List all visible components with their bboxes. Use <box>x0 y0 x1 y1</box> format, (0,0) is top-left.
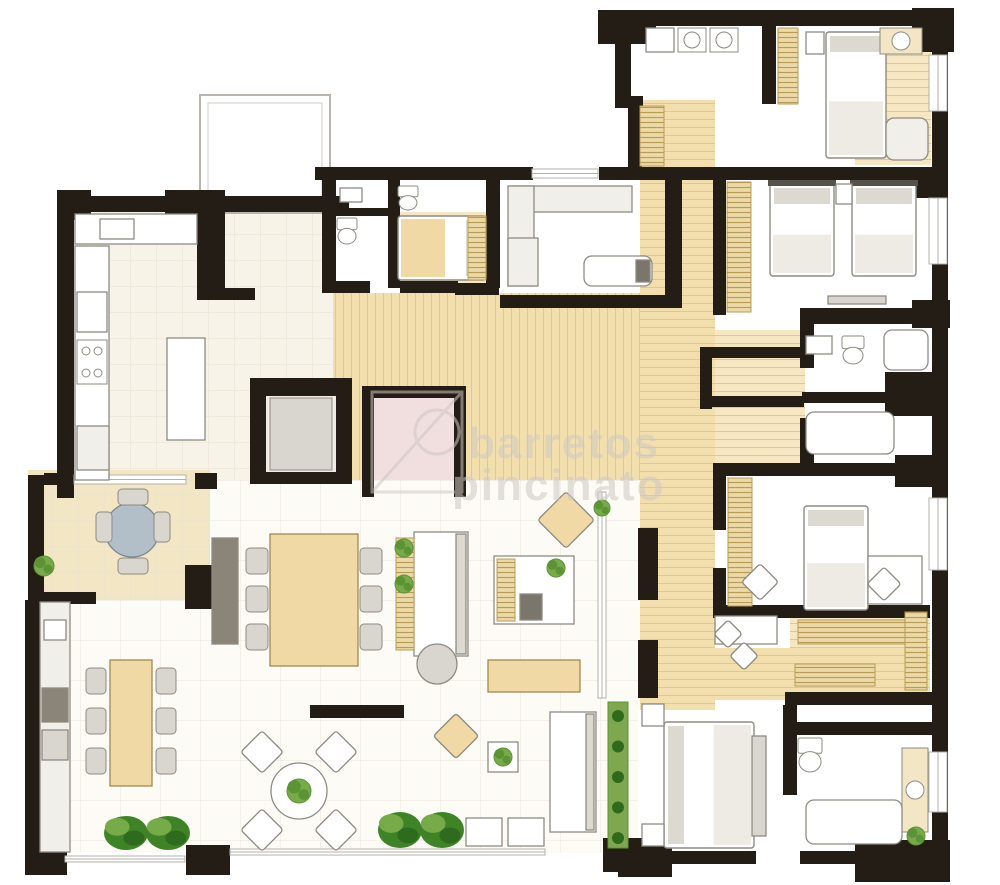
dining-chair <box>360 586 382 612</box>
wall <box>250 378 266 482</box>
plant-terrace-table <box>287 779 311 803</box>
wc1-sink <box>340 188 362 202</box>
bedroom3-bed <box>804 506 868 610</box>
planter-strip-blob <box>612 832 624 844</box>
wc1-toilet <box>337 218 357 244</box>
plant-master-bath-leaf-c <box>916 835 924 843</box>
wall <box>455 283 499 295</box>
planter-strip-blob <box>612 741 624 753</box>
wall <box>713 568 726 608</box>
master-bed-blanket <box>714 725 752 845</box>
wall <box>802 392 888 403</box>
dining-chair <box>246 624 268 650</box>
core-cabinet <box>167 338 205 440</box>
bedroom2-bed-b <box>850 180 918 276</box>
wall <box>713 180 726 315</box>
wall <box>315 167 533 180</box>
bush-center-1-hi <box>379 814 404 833</box>
side-round-table <box>417 644 457 684</box>
wall <box>57 196 74 498</box>
coffee-table-tray <box>520 594 542 620</box>
kitchen-appliance <box>77 292 107 332</box>
bedroom2-bed-b-pillow <box>856 188 912 204</box>
bedroom1-armchair <box>886 118 928 160</box>
bedroom2-bed-a-blanket <box>773 235 831 273</box>
wall <box>336 208 390 216</box>
wall <box>885 372 937 416</box>
plant-sofa-console-2-leaf-b <box>395 576 405 586</box>
laundry-washer-2 <box>710 28 738 52</box>
plant-coffee-table-leaf-b <box>547 560 557 570</box>
floor-plan-canvas: barretospincinato <box>0 0 1000 885</box>
plant-sofa-console-1-leaf-b <box>395 540 405 550</box>
wall <box>486 180 500 288</box>
bedroom3-bed-blanket <box>807 563 865 607</box>
plant-sofa-console-1-leaf-c <box>404 547 412 555</box>
bedroom1-bed-pillow <box>830 36 882 52</box>
dining-left-chair <box>156 748 176 774</box>
wall <box>932 48 948 840</box>
wall <box>713 167 945 180</box>
kitchen-sink <box>100 219 134 239</box>
maid-bed-blanket <box>401 219 445 277</box>
planter-strip-blob <box>612 771 624 783</box>
bedroom2-bed-b-headboard <box>850 180 918 186</box>
bedroom2-closet-hatch <box>727 182 751 312</box>
wall <box>800 851 858 864</box>
wall <box>713 476 726 530</box>
dining-chair <box>246 548 268 574</box>
laundry-tank <box>646 28 674 52</box>
plant-terrace-side-table-leaf-c <box>503 756 511 764</box>
kitchen-stove <box>77 340 107 384</box>
bush-left-1-sh <box>123 831 144 846</box>
bedroom3-bed-pillow <box>808 510 864 526</box>
wall <box>44 473 74 485</box>
dining-left-chair <box>86 708 106 734</box>
breakfast-table <box>105 503 159 557</box>
wc1-toilet-bowl <box>338 228 356 244</box>
service-core-cab <box>270 398 332 470</box>
bedroom2-bed-a-pillow <box>774 188 830 204</box>
wall <box>400 281 458 293</box>
gourmet-sink <box>44 620 66 640</box>
bedroom2-nightstand <box>836 184 852 204</box>
dining-chair <box>360 548 382 574</box>
bath-a-toilet-bowl <box>843 347 863 364</box>
plant-nook-wall-leaf-b <box>35 557 46 568</box>
dining-left-chair <box>156 668 176 694</box>
bath-a-sink <box>806 336 832 354</box>
coffee-table-runner-hatch <box>497 559 515 621</box>
watermark-line2: pincinato <box>452 461 666 510</box>
wall <box>195 473 217 489</box>
master-bed <box>664 722 754 848</box>
master-bath-toilet-tank <box>798 738 822 753</box>
wall <box>310 705 404 718</box>
wall <box>336 378 352 482</box>
master-bath-sink <box>902 748 928 832</box>
wall <box>762 26 776 104</box>
bedroom2-bed-a-headboard <box>768 180 836 186</box>
dining-left-chair <box>86 668 106 694</box>
plant-terrace-side-table <box>494 748 512 766</box>
tv-screen <box>636 260 650 282</box>
plant-coffee-table <box>547 559 565 577</box>
wall <box>670 851 756 864</box>
master-bed-pillow <box>668 726 684 844</box>
terrace-ottoman <box>466 818 502 846</box>
master-bench <box>752 736 766 836</box>
bush-center-2-hi <box>421 814 446 833</box>
bush-center-1-sh <box>397 827 418 843</box>
breakfast-chair <box>96 512 112 542</box>
laundry-washer-1 <box>678 28 706 52</box>
master-bath-toilet <box>798 738 822 772</box>
wall <box>638 640 658 698</box>
wall <box>185 565 213 609</box>
master-nightstand-2 <box>642 824 664 846</box>
wall <box>322 281 370 293</box>
dining-chair <box>246 586 268 612</box>
gourmet-appliance-2 <box>42 730 68 760</box>
bath-a-toilet <box>842 336 864 364</box>
bedroom2-bed-b-blanket <box>855 235 913 273</box>
bath-a-shower <box>884 330 928 370</box>
wall <box>912 300 950 328</box>
plant-master-bath-leaf-b <box>907 828 917 838</box>
plant-master-bath <box>907 827 925 845</box>
wall <box>615 10 945 26</box>
wall <box>197 196 225 294</box>
planter-strip-blob <box>612 710 624 722</box>
wall <box>705 347 804 358</box>
living-bench <box>488 660 580 692</box>
wall <box>855 840 950 882</box>
master-nightstand-1 <box>642 704 664 726</box>
bedroom1-bed <box>826 32 886 158</box>
bush-left-1 <box>104 816 148 850</box>
wall <box>618 845 672 877</box>
dining-chair <box>360 624 382 650</box>
wall <box>783 705 797 795</box>
wall <box>322 180 336 288</box>
wall <box>186 845 230 875</box>
bush-left-2-hi <box>147 818 172 836</box>
closet-corridor-ward-3-hatch <box>905 612 927 690</box>
wall <box>793 722 933 735</box>
living-sideboard <box>212 538 238 644</box>
dining-table <box>270 534 358 666</box>
bedroom1-closet-hatch <box>778 28 798 104</box>
planter-strip-blob <box>612 802 624 814</box>
wall <box>250 472 352 484</box>
bush-center-2-sh <box>439 827 460 843</box>
bedroom1-nightstand <box>806 32 824 54</box>
wall <box>599 167 715 180</box>
plant-sofa-console-1 <box>395 539 413 557</box>
bedroom1-vanity-basin <box>892 32 910 50</box>
maid-bed-head-hatch <box>468 216 486 280</box>
planter-strip <box>608 702 628 848</box>
bush-left-2 <box>146 816 190 850</box>
wall <box>665 180 682 308</box>
wall <box>638 528 658 600</box>
breakfast-chair <box>118 558 148 574</box>
breakfast-chair <box>154 512 170 542</box>
master-bath-sink-basin <box>906 781 924 799</box>
living-sofa-back <box>456 534 466 654</box>
wc2-toilet-bowl <box>399 196 417 210</box>
gourmet-appliance-1 <box>42 688 68 722</box>
plant-terrace-side-table-leaf-b <box>494 749 504 759</box>
plant-sofa-console-2 <box>395 575 413 593</box>
plant-coffee-table-leaf-c <box>556 567 564 575</box>
plant-sofa-console-2-leaf-c <box>404 583 412 591</box>
wall <box>785 692 935 705</box>
kitchen-stove-top <box>77 340 107 384</box>
plant-terrace-table-leaf-b <box>288 780 301 793</box>
plant-terrace-table-leaf-c <box>298 789 309 800</box>
plant-nook-wall-leaf-c <box>44 565 53 574</box>
terrace-ottoman <box>508 818 544 846</box>
wall <box>705 396 804 407</box>
bath-b-tub <box>806 412 894 454</box>
bedroom1-vanity <box>880 28 922 54</box>
kitchen-fridge <box>77 426 109 470</box>
bush-left-2-sh <box>165 831 186 846</box>
vestibule-closet-hatch <box>640 106 664 166</box>
dining-left-chair <box>86 748 106 774</box>
breakfast-chair <box>118 489 148 505</box>
floor-plan-svg: barretospincinato <box>0 0 1000 885</box>
tv-chaise <box>508 238 538 286</box>
kitchen-sink-counter <box>75 214 197 244</box>
bush-left-1-hi <box>105 818 130 836</box>
plant-nook-wall <box>34 556 54 576</box>
wall <box>197 288 255 300</box>
wall <box>25 600 40 848</box>
master-bath-tub <box>806 800 902 844</box>
bush-center-2 <box>420 812 464 848</box>
wall <box>28 475 44 603</box>
closet-corridor-ward-2-hatch <box>795 664 875 686</box>
bedroom1-bed-blanket <box>829 101 883 155</box>
dining-left-chair <box>156 708 176 734</box>
wall <box>615 26 631 102</box>
bedroom2-bench <box>828 296 886 304</box>
wall <box>500 295 682 308</box>
terrace-sofa-back <box>586 714 594 830</box>
wc2-toilet <box>398 186 418 210</box>
wall <box>895 455 937 487</box>
master-bath-toilet-bowl <box>799 752 821 772</box>
bedroom2-bed-a <box>768 180 836 276</box>
dining-left-table <box>110 660 152 786</box>
bush-center-1 <box>378 812 422 848</box>
